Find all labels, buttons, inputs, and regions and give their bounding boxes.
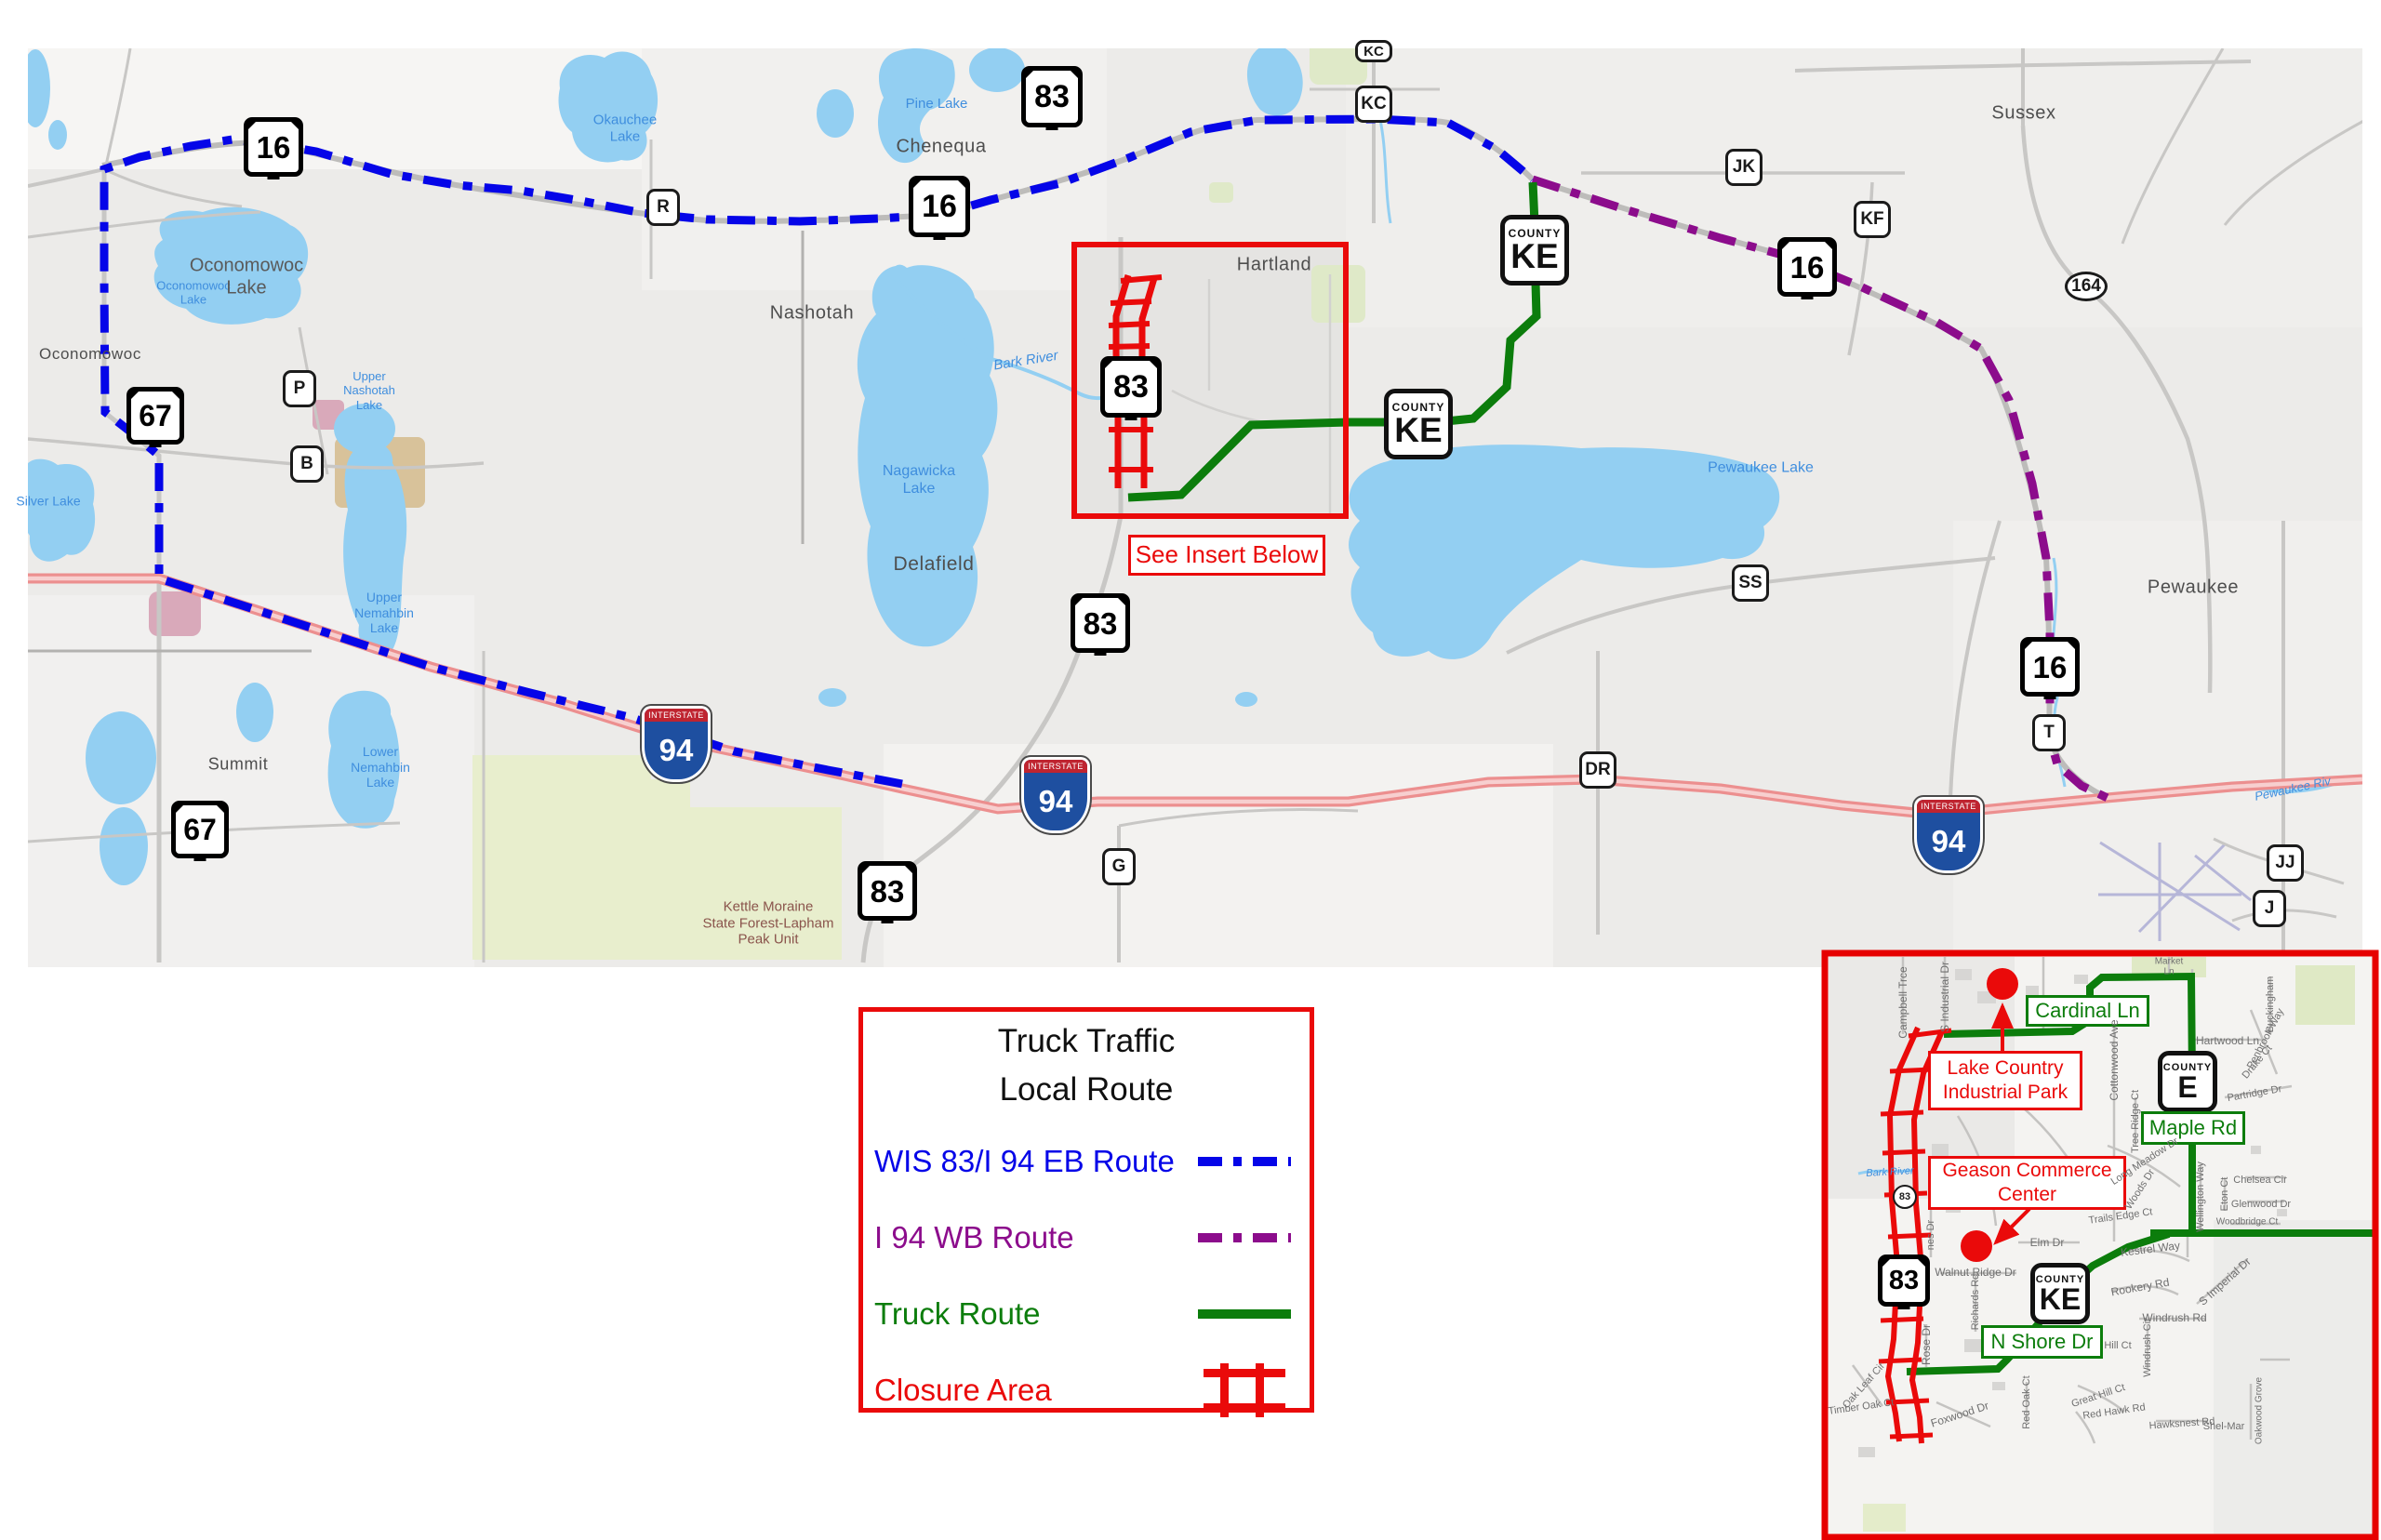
label-line: Nagawicka xyxy=(883,463,955,481)
wis-shield-earR xyxy=(2066,640,2077,651)
street-label-shel-mar: Shel-Mar xyxy=(2203,1421,2245,1432)
interstate-caption: INTERSTATE xyxy=(1024,760,1087,773)
wis-shield-83: 83 xyxy=(1100,356,1162,418)
interstate-shield-94: INTERSTATE94 xyxy=(1914,797,1983,873)
county-marker-j: J xyxy=(2253,890,2286,927)
wis-shield-number: 83 xyxy=(871,876,905,907)
wis-shield-number: 83 xyxy=(1113,371,1149,403)
cardinal-ln-line: Cardinal Ln xyxy=(2035,999,2140,1024)
street-label-buckingham: Buckingham xyxy=(2265,976,2276,1033)
county-marker-jj: JJ xyxy=(2267,844,2304,882)
street-label-wellington-way: Wellington Way xyxy=(2195,1162,2206,1232)
wis-shield-tab xyxy=(268,172,280,179)
label-line: Peak Unit xyxy=(703,932,834,949)
legend-title-line1: Truck Traffic xyxy=(863,1023,1310,1060)
interstate-caption: INTERSTATE xyxy=(1917,800,1980,813)
truck-route-map-document: OconomowocSummitNashotahChenequaDelafiel… xyxy=(0,0,2381,1540)
county-shield-ke: COUNTYKE xyxy=(1500,215,1569,285)
label-line: Lake xyxy=(883,481,955,498)
legend-wb-route-label: I 94 WB Route xyxy=(874,1220,1074,1255)
street-label-rookery-rd: Rookery Rd xyxy=(2110,1276,2171,1299)
ladder-bar xyxy=(1256,1363,1264,1417)
wis-shield-16: 16 xyxy=(1777,237,1837,297)
wis-shield-16: 16 xyxy=(909,176,970,237)
legend-truck-route-symbol xyxy=(1198,1309,1291,1319)
n-shore-dr-label: N Shore Dr xyxy=(1981,1325,2103,1359)
wis-shield-earL xyxy=(1073,596,1084,607)
legend: Truck Traffic Local Route WIS 83/I 94 EB… xyxy=(858,1007,1314,1413)
wis-shield-tab xyxy=(1046,123,1058,130)
label-line: Lower xyxy=(351,744,410,760)
maple-rd-label: Maple Rd xyxy=(2141,1111,2245,1145)
lake-country-industrial-park-line: Industrial Park xyxy=(1943,1081,2068,1105)
geason-commerce-center-line: Center xyxy=(1998,1183,2056,1207)
county-marker-dr: DR xyxy=(1579,751,1616,789)
lake-country-industrial-park-label: Lake CountryIndustrial Park xyxy=(1928,1051,2082,1110)
wis-shield-tab xyxy=(1802,292,1814,299)
upper-nashotah-lake-label: UpperNashotahLake xyxy=(343,369,395,412)
legend-eb-route-symbol xyxy=(1198,1157,1291,1166)
oconomowoc-lake-gray-label: OconomowocLake xyxy=(190,255,303,299)
street-label-eton-ct: Eton Ct xyxy=(2219,1177,2230,1212)
label-line: Lake xyxy=(351,775,410,790)
legend-wb-route: I 94 WB Route xyxy=(863,1200,1310,1276)
wis-shield-tab xyxy=(194,854,206,861)
wis-shield-number: 83 xyxy=(1084,608,1118,639)
geason-commerce-center-line: Geason Commerce xyxy=(1942,1159,2111,1183)
county-marker-83: 83 xyxy=(1893,1185,1917,1209)
wis-shield-67: 67 xyxy=(171,801,229,858)
town-label-hartland: Hartland xyxy=(1237,255,1311,276)
street-label-rose-dr: Rose Dr xyxy=(1920,1324,1933,1365)
kettle-moraine-label: Kettle MoraineState Forest-LaphamPeak Un… xyxy=(703,898,834,948)
wis-shield-83: 83 xyxy=(1021,66,1083,127)
interstate-shield-94: INTERSTATE94 xyxy=(1021,757,1090,833)
street-label-kestrel-way: Kestrel Way xyxy=(2120,1239,2180,1259)
wis-shield-number: 16 xyxy=(257,132,291,163)
legend-items: WIS 83/I 94 EB RouteI 94 WB RouteTruck R… xyxy=(863,1123,1310,1428)
legend-eb-route: WIS 83/I 94 EB Route xyxy=(863,1123,1310,1200)
wis-shield-earR xyxy=(1916,1257,1927,1268)
wis-shield-number: 67 xyxy=(139,401,172,431)
wis-shield-tab xyxy=(1095,648,1107,656)
wis-shield-earR xyxy=(903,864,914,875)
wis-shield-earL xyxy=(246,120,258,131)
county-marker-kc-partial: KC xyxy=(1355,40,1392,62)
wis-shield-number: 16 xyxy=(922,191,957,222)
label-line: Silver Lake xyxy=(16,494,80,510)
pewaukee-river-label: Pewaukee Riv xyxy=(2254,774,2332,803)
legend-closure-area-label: Closure Area xyxy=(874,1373,1052,1408)
town-label-nashotah: Nashotah xyxy=(770,303,854,325)
legend-truck-route-label: Truck Route xyxy=(874,1296,1041,1332)
wis-shield-number: 16 xyxy=(2033,652,2068,683)
wis-shield-tab xyxy=(882,916,894,923)
wis-shield-earL xyxy=(1780,240,1791,251)
wis-shield-tab xyxy=(2044,692,2056,699)
county-marker-b: B xyxy=(290,445,324,483)
wis-shield-earR xyxy=(1148,359,1159,370)
wis-shield-tab xyxy=(1125,413,1137,420)
wis-shield-earR xyxy=(170,390,181,401)
label-line: Kettle Moraine xyxy=(703,898,834,915)
label-line: Lake xyxy=(343,398,395,412)
legend-eb-route-label: WIS 83/I 94 EB Route xyxy=(874,1144,1175,1179)
county-shield-letters: KE xyxy=(2040,1285,2081,1313)
interstate-number: 94 xyxy=(1932,813,1966,870)
interstate-shield-94: INTERSTATE94 xyxy=(642,706,711,782)
street-label-cottonwood-ave: Cottonwood Ave xyxy=(2108,1019,2121,1100)
wis-shield-earL xyxy=(2023,640,2034,651)
county-marker-p: P xyxy=(283,370,316,407)
label-line: Bark River xyxy=(1866,1165,1914,1180)
label-line: Nemahbin xyxy=(351,760,410,776)
street-label-chelsea-cir: Chelsea Cir xyxy=(2233,1175,2286,1186)
wis-shield-earR xyxy=(1823,240,1834,251)
legend-wb-route-symbol xyxy=(1198,1233,1291,1242)
wis-shield-earL xyxy=(1881,1257,1892,1268)
label-line: Lake xyxy=(190,277,303,299)
ladder-bar xyxy=(1204,1403,1285,1412)
label-line: Upper xyxy=(343,369,395,383)
wis-shield-earR xyxy=(1116,596,1127,607)
county-shield-letters: KE xyxy=(1510,240,1558,272)
label-line: Nashotah xyxy=(343,383,395,397)
street-label-market: Market xyxy=(2155,957,2184,967)
bark-river-inset-label: Bark River xyxy=(1866,1165,1914,1180)
label-line: Oconomowoc xyxy=(190,255,303,277)
wis-shield-tab xyxy=(1898,1302,1910,1309)
county-marker-g: G xyxy=(1102,848,1136,885)
town-label-sussex: Sussex xyxy=(1991,103,2055,125)
street-label-elm-dr: Elm Dr xyxy=(2030,1236,2065,1249)
label-line: State Forest-Lapham xyxy=(703,915,834,932)
wis-shield-67: 67 xyxy=(126,387,184,445)
wis-shield-earL xyxy=(1024,69,1035,80)
wis-shield-number: 67 xyxy=(183,815,217,844)
town-label-summit: Summit xyxy=(208,755,269,775)
wis-shield-83: 83 xyxy=(1071,593,1130,653)
street-label-nes-dr: nes Dr xyxy=(1925,1220,1936,1250)
label-line: Pewaukee Lake xyxy=(1708,460,1814,478)
street-label-hill-ct: Hill Ct xyxy=(2104,1340,2131,1351)
county-shield-ke: COUNTYKE xyxy=(1384,389,1453,459)
label-line: Lake xyxy=(354,620,414,636)
lake-country-industrial-park-line: Lake Country xyxy=(1948,1056,2064,1081)
wis-shield-earL xyxy=(129,390,140,401)
nagawicka-lake-label: NagawickaLake xyxy=(883,463,955,498)
street-label-windrush-cir: Windrush Cir xyxy=(2142,1318,2153,1377)
street-label-red-hawk-rd: Red Hawk Rd xyxy=(2082,1401,2147,1421)
geason-commerce-center-label: Geason CommerceCenter xyxy=(1928,1156,2126,1210)
county-marker-t: T xyxy=(2032,714,2066,751)
label-line: Okauchee xyxy=(593,112,657,128)
wis-shield-tab xyxy=(150,440,162,447)
street-label-hartwood-ln: Hartwood Ln xyxy=(2196,1034,2259,1047)
county-shield-e: COUNTYE xyxy=(2158,1051,2217,1112)
label-line: Bark River xyxy=(992,348,1059,374)
wis-shield-earR xyxy=(956,179,967,190)
wis-shield-earL xyxy=(911,179,923,190)
cardinal-ln-label: Cardinal Ln xyxy=(2026,995,2149,1027)
wis-shield-16: 16 xyxy=(244,117,303,177)
pewaukee-lake-label: Pewaukee Lake xyxy=(1708,460,1814,478)
town-label-chenequa: Chenequa xyxy=(896,137,986,158)
county-shield-ke: COUNTYKE xyxy=(2030,1263,2090,1324)
silver-lake-label: Silver Lake xyxy=(16,494,80,510)
interstate-caption: INTERSTATE xyxy=(645,709,708,722)
label-line: Upper xyxy=(354,590,414,605)
wis-shield-earR xyxy=(1069,69,1080,80)
street-label-timber-oak-ct: Timber Oak Ct xyxy=(1828,1397,1895,1417)
ladder-bar xyxy=(1204,1369,1285,1377)
street-label-oakwood-grove: Oakwood Grove xyxy=(2255,1377,2265,1444)
wis-shield-earL xyxy=(860,864,871,875)
interstate-number: 94 xyxy=(659,722,694,779)
label-line: Lake xyxy=(593,128,657,145)
bark-river-label: Bark River xyxy=(992,348,1059,374)
street-label-s-industrial-dr: S Industrial Dr xyxy=(1938,962,1951,1032)
wis-shield-83: 83 xyxy=(858,861,917,921)
label-line: Pine Lake xyxy=(906,96,968,113)
county-marker-r: R xyxy=(646,189,680,226)
street-label-tree-ridge-ct: Tree Ridge Ct xyxy=(2130,1090,2141,1153)
county-marker-kc: KC xyxy=(1355,86,1392,123)
county-marker-kf: KF xyxy=(1854,201,1891,238)
street-label-partridge-dr: Partridge Dr xyxy=(2227,1083,2282,1104)
county-shield-letters: KE xyxy=(1394,414,1442,446)
street-label-woodbridge-ct: Woodbridge Ct xyxy=(2216,1217,2279,1228)
wis-shield-earL xyxy=(1103,359,1114,370)
oval-shield-164: 164 xyxy=(2065,272,2108,301)
town-label-delafield: Delafield xyxy=(893,553,974,576)
interstate-number: 94 xyxy=(1039,773,1073,830)
upper-nemahbin-lake-label: UpperNemahbinLake xyxy=(354,590,414,636)
wis-shield-83: 83 xyxy=(1878,1255,1930,1307)
county-marker-jk: JK xyxy=(1725,149,1762,186)
see-insert-below-text: See Insert Below xyxy=(1136,540,1319,570)
street-label-ln: Ln xyxy=(2163,967,2174,977)
maple-rd-line: Maple Rd xyxy=(2149,1116,2237,1141)
town-label-oconomowoc: Oconomowoc xyxy=(39,345,141,364)
label-line: Nemahbin xyxy=(354,605,414,621)
pine-lake-label: Pine Lake xyxy=(906,96,968,113)
town-label-pewaukee: Pewaukee xyxy=(2148,577,2239,599)
legend-truck-route: Truck Route xyxy=(863,1276,1310,1352)
ladder-bar xyxy=(1220,1363,1229,1417)
wis-shield-tab xyxy=(934,232,946,240)
wis-shield-earR xyxy=(289,120,300,131)
street-label-foxwood-dr: Foxwood Dr xyxy=(1929,1399,1990,1429)
wis-shield-number: 83 xyxy=(1034,81,1070,113)
wis-shield-earR xyxy=(215,803,226,815)
street-label-red-oak-ct: Red Oak Ct xyxy=(2021,1375,2032,1428)
wis-shield-number: 83 xyxy=(1889,1268,1919,1294)
legend-closure-area: Closure Area xyxy=(863,1352,1310,1428)
street-label-campbell-trce: Campbell Trce xyxy=(1896,966,1909,1038)
lower-nemahbin-lake-label: LowerNemahbinLake xyxy=(351,744,410,790)
legend-closure-area-symbol xyxy=(1198,1363,1291,1417)
street-label-glenwood-dr: Glenwood Dr xyxy=(2231,1199,2291,1210)
label-line: Pewaukee Riv xyxy=(2254,774,2332,803)
wis-shield-number: 16 xyxy=(1790,252,1825,283)
see-insert-below-box: See Insert Below xyxy=(1128,535,1325,576)
legend-title-line2: Local Route xyxy=(863,1071,1310,1109)
wis-shield-earL xyxy=(174,803,185,815)
okauchee-lake-label: OkaucheeLake xyxy=(593,112,657,144)
n-shore-dr-line: N Shore Dr xyxy=(1990,1330,2093,1355)
county-shield-letters: E xyxy=(2177,1073,2197,1101)
county-marker-ss: SS xyxy=(1732,564,1769,602)
wis-shield-16: 16 xyxy=(2020,637,2080,697)
street-label-s-imperial-dr: S Imperial Dr xyxy=(2196,1255,2253,1308)
street-label-richards-rd: Richards Rd xyxy=(1970,1274,1981,1331)
